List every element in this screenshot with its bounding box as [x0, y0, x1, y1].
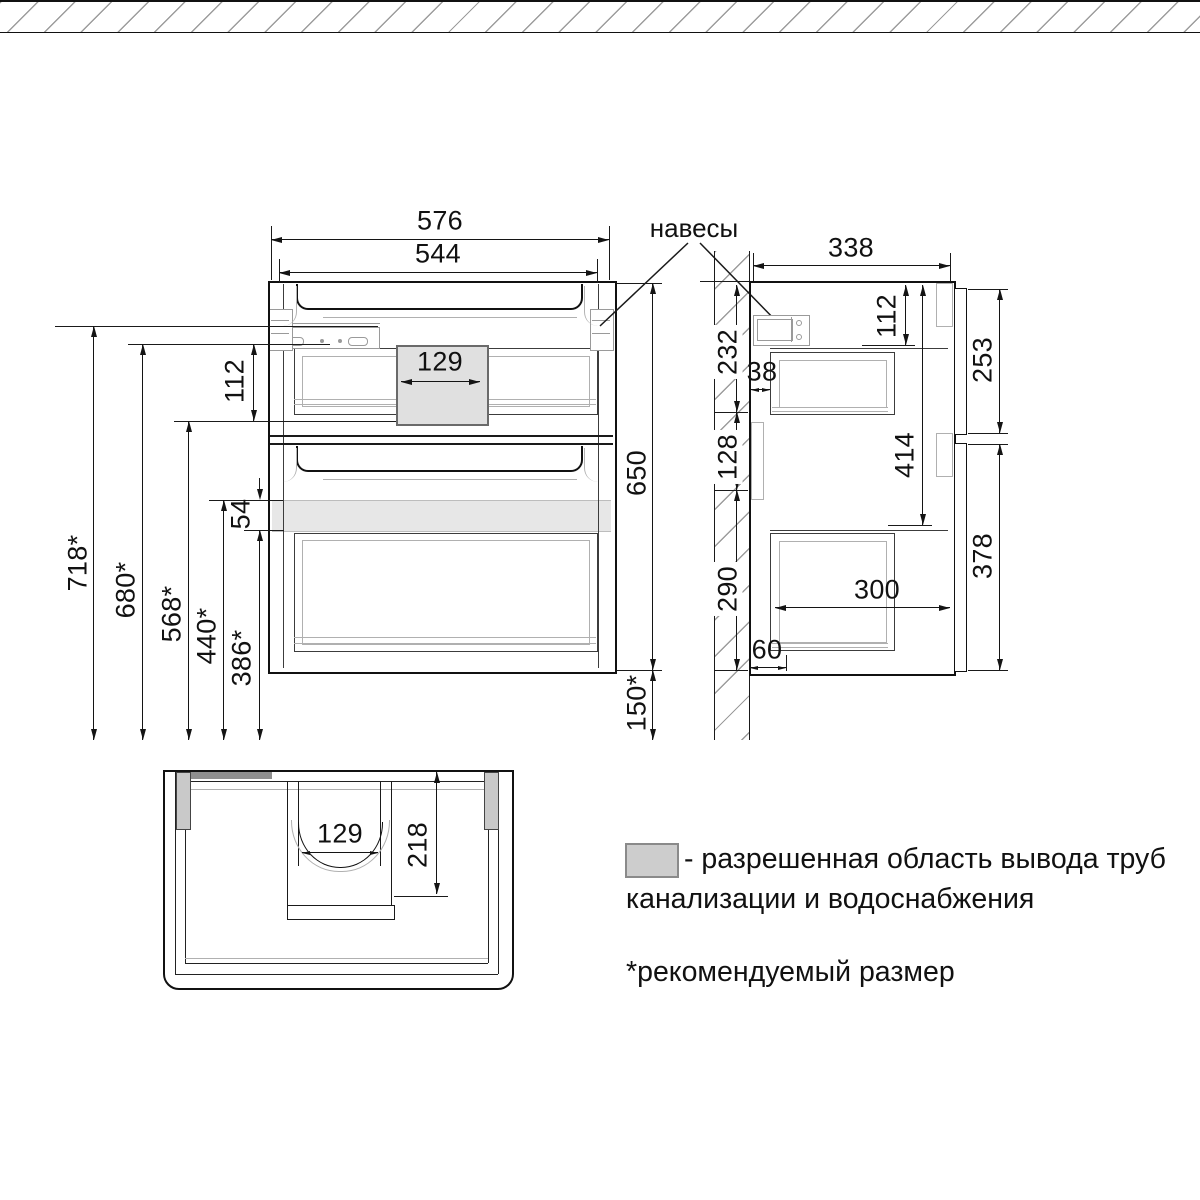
dim-front-top-h: 253: [970, 337, 997, 383]
legend-line1: - разрешенная область вывода труб: [684, 843, 1166, 876]
legend-note: *рекомендуемый размер: [626, 956, 955, 989]
dim-h-pipe-bottom: 568*: [159, 586, 186, 643]
dimline-150: [652, 670, 653, 740]
dimline-38: [751, 389, 770, 390]
dimline-bottom-129: [302, 852, 378, 853]
floor-hatch: [0, 0, 1200, 33]
dim-bottom-pipe-depth: 218: [405, 822, 432, 868]
dimline-680: [142, 344, 143, 740]
dim-front-height: 650: [624, 450, 651, 496]
dimline-378: [999, 444, 1000, 670]
legend-line2: канализации и водоснабжения: [626, 883, 1034, 916]
side-front-panel-bottom: [954, 443, 967, 672]
dim-side-top-inset: 112: [874, 294, 901, 338]
dimline-338: [753, 265, 950, 266]
dim-floor-gap: 150*: [624, 675, 651, 732]
dimline-440: [223, 500, 224, 740]
dimline-218: [436, 772, 437, 894]
dimline-414: [922, 285, 923, 525]
dim-h-band-top: 440*: [194, 608, 221, 665]
dim-back-gap: 38: [747, 359, 778, 386]
dim-depth: 338: [828, 235, 874, 262]
dim-front-top-inset: 112: [222, 359, 249, 403]
bottom-view-cabinet: [163, 770, 514, 990]
front-view-cabinet: [268, 281, 617, 674]
side-front-panel-top: [954, 288, 967, 435]
dim-bottom-back-gap: 60: [752, 637, 783, 664]
dim-drawer-depth: 300: [854, 577, 900, 604]
dim-h-band-bottom: 386*: [229, 630, 256, 687]
dimline-253: [999, 289, 1000, 433]
dim-width-outer: 576: [417, 208, 463, 235]
dimline-side-112: [905, 285, 906, 345]
dim-h-top: 680*: [113, 562, 140, 619]
dim-wall-seg-top: 232: [714, 325, 743, 379]
dim-width-inner: 544: [415, 241, 461, 268]
dimline-650: [652, 283, 653, 670]
dim-wall-seg-mid: 128: [714, 430, 743, 484]
dimline-300: [775, 607, 950, 608]
dimline-718: [93, 326, 94, 740]
dimline-386: [259, 530, 260, 740]
dimline-544: [279, 272, 597, 273]
dimline-front-112: [253, 344, 254, 421]
dim-wall-seg-bottom: 290: [714, 562, 743, 616]
dim-inner-height: 414: [892, 432, 919, 478]
dimline-60: [750, 667, 786, 668]
dim-band-height: 54: [228, 499, 255, 530]
dim-h-total: 718*: [65, 535, 92, 592]
dimline-568: [188, 421, 189, 740]
side-view-cabinet: [749, 281, 956, 676]
legend-swatch: [625, 843, 679, 878]
installation-drawing: 129 576 544 718* 680* 568* 440* 386* 112…: [0, 0, 1200, 1200]
dim-bottom-pipe-width: 129: [317, 821, 363, 848]
dim-front-bottom-h: 378: [970, 533, 997, 579]
